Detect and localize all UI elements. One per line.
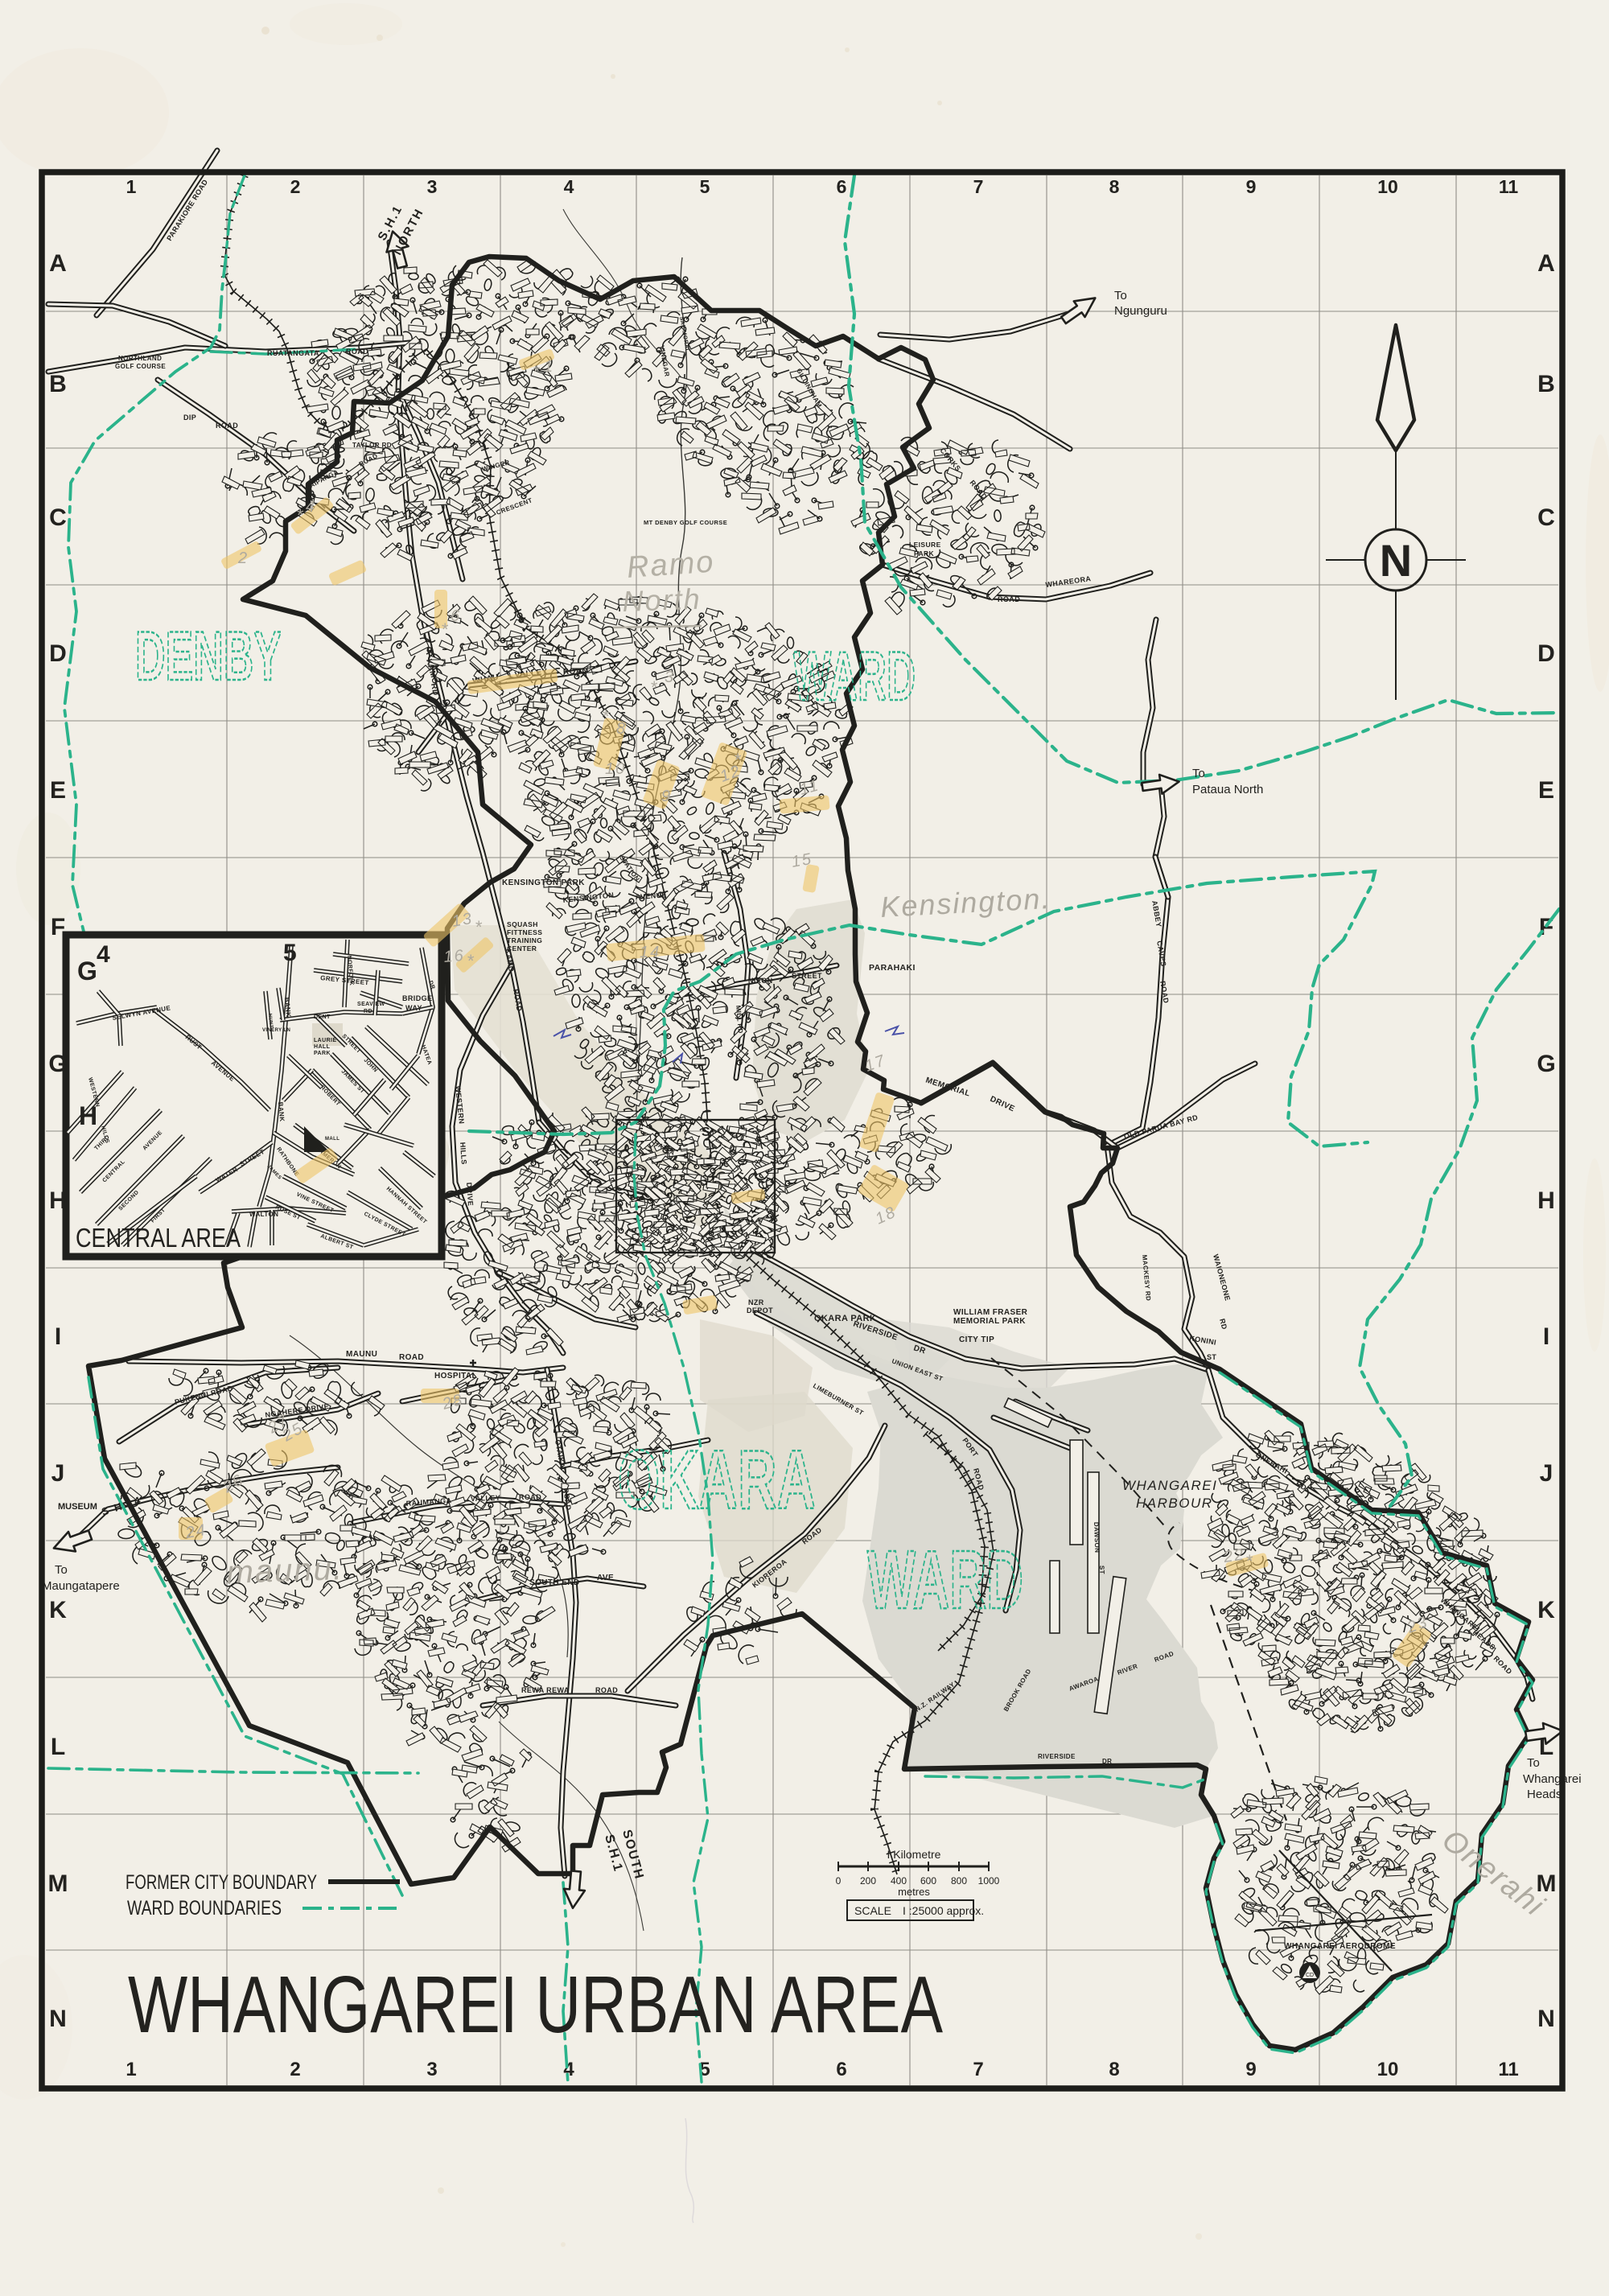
svg-text:4: 4 <box>564 176 574 197</box>
svg-text:G: G <box>77 957 97 985</box>
svg-text:400: 400 <box>891 1875 907 1887</box>
svg-text:SOUTH END: SOUTH END <box>529 1578 580 1587</box>
svg-text:PARK: PARK <box>314 1051 331 1056</box>
svg-text:9: 9 <box>661 788 672 805</box>
svg-text:E: E <box>1538 777 1554 804</box>
svg-text:STREET: STREET <box>792 972 822 980</box>
svg-text:I: I <box>55 1323 61 1350</box>
svg-text:K: K <box>49 1597 67 1623</box>
svg-text:*: * <box>475 917 484 937</box>
svg-text:WARD BOUNDARIES: WARD BOUNDARIES <box>127 1897 282 1920</box>
svg-text:NORTHLAND: NORTHLAND <box>118 355 162 362</box>
svg-text:MUSEUM: MUSEUM <box>58 1502 97 1512</box>
svg-text:13: 13 <box>451 910 475 931</box>
svg-text:NIXON: NIXON <box>748 977 773 985</box>
svg-text:I: I <box>1543 1323 1549 1350</box>
svg-text:10: 10 <box>1377 2059 1399 2080</box>
svg-text:K: K <box>1537 1597 1555 1623</box>
svg-text:*: * <box>467 951 475 971</box>
svg-text:Pataua North: Pataua North <box>1192 783 1263 796</box>
svg-text:1: 1 <box>544 358 554 376</box>
svg-text:G: G <box>1537 1051 1555 1077</box>
svg-text:WAY: WAY <box>405 1004 422 1012</box>
svg-text:11: 11 <box>1499 176 1519 197</box>
svg-text:GOLF COURSE: GOLF COURSE <box>115 363 166 370</box>
svg-text:PARK: PARK <box>914 549 935 558</box>
svg-text:To: To <box>1192 767 1205 780</box>
svg-text:BRIDGE: BRIDGE <box>402 994 432 1002</box>
svg-text:1: 1 <box>126 2059 136 2080</box>
svg-text:ROAD: ROAD <box>595 1686 618 1694</box>
svg-text:VINERY LN: VINERY LN <box>262 1028 290 1033</box>
svg-text:North: North <box>622 582 702 618</box>
svg-text:REWA REWA: REWA REWA <box>521 1686 570 1694</box>
svg-text:AVE: AVE <box>597 1574 614 1582</box>
svg-text:OKARA: OKARA <box>618 1434 816 1527</box>
svg-text:10: 10 <box>1377 176 1398 197</box>
svg-text:8: 8 <box>1109 176 1120 197</box>
svg-text:2: 2 <box>237 549 249 567</box>
svg-text:N: N <box>49 2006 67 2032</box>
svg-text:Ramo: Ramo <box>626 545 716 585</box>
svg-text:DR: DR <box>1102 1758 1112 1765</box>
svg-text:WHANGAREI AERODROME: WHANGAREI AERODROME <box>1284 1942 1396 1951</box>
svg-text:1000: 1000 <box>978 1875 1000 1887</box>
svg-text:ST: ST <box>1207 1353 1216 1361</box>
svg-text:HALL: HALL <box>314 1044 331 1050</box>
svg-text:*: * <box>650 677 659 697</box>
svg-text:A: A <box>1537 250 1555 277</box>
svg-text:B: B <box>49 371 67 397</box>
svg-text:*: * <box>296 505 305 525</box>
svg-text:S: S <box>702 1125 710 1139</box>
svg-text:TAYLOR RD: TAYLOR RD <box>352 442 392 449</box>
svg-text:5: 5 <box>700 176 710 197</box>
svg-text:LAURIE: LAURIE <box>314 1038 336 1043</box>
svg-text:TRAINING: TRAINING <box>507 936 542 944</box>
svg-text:14: 14 <box>640 944 660 961</box>
svg-text:ST: ST <box>1098 1566 1105 1574</box>
svg-text:E: E <box>50 777 66 804</box>
svg-text:PARAHAKI: PARAHAKI <box>869 963 916 973</box>
svg-text:N: N <box>1537 2006 1555 2032</box>
svg-text:*: * <box>533 362 541 382</box>
svg-text:J: J <box>1540 1460 1553 1487</box>
svg-text:MEMORIAL PARK: MEMORIAL PARK <box>953 1317 1026 1326</box>
svg-text:ROAD: ROAD <box>998 595 1020 603</box>
svg-text:3: 3 <box>665 669 675 686</box>
svg-text:600: 600 <box>920 1875 936 1887</box>
svg-text:11: 11 <box>1498 2059 1518 2080</box>
svg-text:LEISURE: LEISURE <box>909 541 941 549</box>
svg-text:22: 22 <box>1222 1546 1246 1567</box>
svg-text:15: 15 <box>790 850 814 871</box>
svg-text:SEAVIEW: SEAVIEW <box>357 1002 385 1007</box>
svg-text:D: D <box>49 640 67 667</box>
svg-text:I :25000 approx.: I :25000 approx. <box>903 1904 984 1917</box>
svg-text:C: C <box>1537 504 1555 531</box>
svg-text:N: N <box>1380 535 1412 586</box>
svg-text:*: * <box>441 619 450 640</box>
svg-text:NZR: NZR <box>748 1298 764 1306</box>
svg-text:VALLEY: VALLEY <box>471 1494 501 1503</box>
svg-text:HARBOUR: HARBOUR <box>1136 1496 1213 1511</box>
svg-text:FITTNESS: FITTNESS <box>507 928 542 936</box>
svg-text:2: 2 <box>290 2059 300 2080</box>
svg-text:WHANGAREI URBAN AREA: WHANGAREI URBAN AREA <box>128 1960 943 2050</box>
svg-text:9: 9 <box>1245 2059 1256 2080</box>
svg-text:Whangarei: Whangarei <box>1523 1772 1582 1786</box>
svg-text:H: H <box>1537 1187 1555 1214</box>
svg-text:6: 6 <box>451 607 461 625</box>
svg-text:CD: CD <box>1306 1973 1314 1978</box>
svg-text:6: 6 <box>836 2059 846 2080</box>
svg-text:ROAD: ROAD <box>519 1493 541 1501</box>
svg-text:4: 4 <box>97 941 110 968</box>
svg-text:CITY TIP: CITY TIP <box>959 1335 994 1344</box>
svg-text:10: 10 <box>605 760 626 778</box>
svg-text:WHANGAREI: WHANGAREI <box>1122 1478 1217 1493</box>
svg-text:RD: RD <box>364 1009 372 1014</box>
svg-text:*: * <box>602 706 611 726</box>
svg-text:DIP: DIP <box>183 414 196 422</box>
svg-text:WARD: WARD <box>793 638 916 715</box>
svg-text:7: 7 <box>973 176 984 197</box>
svg-text:WARD: WARD <box>867 1533 1023 1626</box>
svg-text:DENBY: DENBY <box>135 618 282 695</box>
svg-text:ROAD: ROAD <box>216 422 238 430</box>
svg-text:OKARA PARK: OKARA PARK <box>814 1314 876 1323</box>
svg-text:5: 5 <box>283 940 297 966</box>
svg-text:DAWSON: DAWSON <box>1093 1522 1101 1553</box>
svg-text:7: 7 <box>973 2059 983 2080</box>
svg-text:DENT: DENT <box>314 1014 331 1020</box>
svg-text:ROAD: ROAD <box>346 348 368 356</box>
svg-text:DRIVE: DRIVE <box>465 1182 475 1206</box>
svg-text:*: * <box>1245 1551 1254 1571</box>
svg-text:24: 24 <box>183 1521 208 1542</box>
svg-text:8: 8 <box>616 720 627 738</box>
svg-text:Heads: Heads <box>1527 1788 1562 1801</box>
svg-text:KENSINGTON PARK: KENSINGTON PARK <box>502 878 585 887</box>
svg-text:To: To <box>1527 1756 1540 1770</box>
svg-text:ROAD: ROAD <box>399 1353 424 1362</box>
svg-text:FORMER CITY BOUNDARY: FORMER CITY BOUNDARY <box>126 1871 317 1894</box>
svg-text:ROAD: ROAD <box>563 667 588 677</box>
svg-text:3: 3 <box>426 2059 437 2080</box>
svg-text:DEPOT: DEPOT <box>747 1306 773 1315</box>
svg-text:To: To <box>55 1563 68 1577</box>
svg-text:6: 6 <box>837 176 847 197</box>
svg-text:DR: DR <box>684 1153 693 1160</box>
svg-text:MALL: MALL <box>325 1137 339 1142</box>
svg-text:SQUASH: SQUASH <box>507 920 538 928</box>
svg-text:200: 200 <box>860 1875 876 1887</box>
svg-text:SCALE: SCALE <box>854 1904 891 1917</box>
svg-text:HILLS: HILLS <box>459 1142 468 1165</box>
svg-text:MAUNU: MAUNU <box>346 1350 377 1359</box>
svg-text:*: * <box>734 750 743 770</box>
svg-text:Ngunguru: Ngunguru <box>1114 304 1167 318</box>
svg-text:M: M <box>48 1870 68 1897</box>
svg-text:L: L <box>51 1734 65 1760</box>
svg-text:To: To <box>1114 289 1127 302</box>
svg-text:WALTON: WALTON <box>249 1211 278 1218</box>
svg-text:16: 16 <box>443 947 466 966</box>
svg-text:MT DENBY GOLF COURSE: MT DENBY GOLF COURSE <box>644 519 727 526</box>
svg-text:J: J <box>51 1460 65 1487</box>
svg-text:metres: metres <box>898 1886 930 1898</box>
svg-text:HOSPITAL: HOSPITAL <box>434 1372 477 1380</box>
svg-text:RIVERSIDE: RIVERSIDE <box>1038 1753 1076 1760</box>
svg-text:9: 9 <box>1246 176 1257 197</box>
svg-text:8: 8 <box>1109 2059 1119 2080</box>
svg-text:800: 800 <box>951 1875 967 1887</box>
svg-text:4: 4 <box>306 498 316 516</box>
svg-text:RUATANGATA: RUATANGATA <box>267 349 319 357</box>
svg-text:maunu.: maunu. <box>226 1551 344 1590</box>
svg-text:WILLIAM FRASER: WILLIAM FRASER <box>953 1308 1028 1317</box>
svg-text:0: 0 <box>836 1875 842 1887</box>
svg-text:B: B <box>1537 371 1555 397</box>
svg-text:CENTRAL AREA: CENTRAL AREA <box>76 1223 241 1253</box>
svg-text:D: D <box>1537 640 1555 667</box>
svg-text:Maungatapere: Maungatapere <box>42 1579 120 1593</box>
svg-text:I Kilometre: I Kilometre <box>887 1848 941 1861</box>
svg-text:1: 1 <box>126 176 137 197</box>
svg-text:A: A <box>49 250 67 277</box>
svg-text:C: C <box>49 504 67 531</box>
svg-text:2: 2 <box>290 176 301 197</box>
svg-text:3: 3 <box>427 176 438 197</box>
